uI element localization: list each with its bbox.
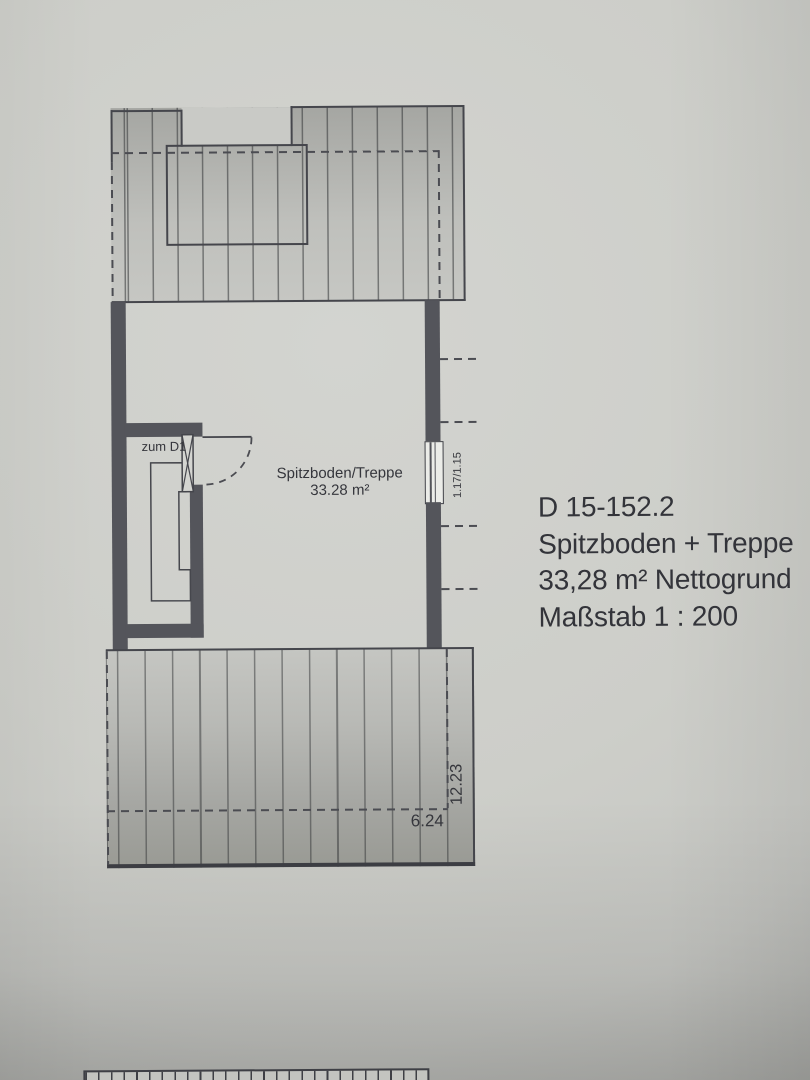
dormer-outline bbox=[166, 144, 309, 246]
roof-edge-right bbox=[462, 105, 465, 301]
depth-dimension-label: 12.23 bbox=[447, 758, 466, 810]
room-area-label: 33.28 m² bbox=[240, 481, 440, 499]
room-name-label: Spitzboden/Treppe bbox=[240, 464, 440, 482]
staircase-outline bbox=[151, 463, 191, 601]
floor-plan: Spitzboden/Treppe 33.28 m² zum D1 1.17/1… bbox=[0, 0, 810, 1080]
legend-area: 33,28 m² Nettogrund bbox=[538, 561, 794, 599]
legend-scale: Maßstab 1 : 200 bbox=[538, 598, 794, 636]
projection-dashed-line-2 bbox=[440, 421, 480, 423]
roof-notch-left-edge bbox=[180, 110, 182, 147]
stair-wall-right bbox=[190, 485, 204, 638]
stair-wall-top bbox=[124, 423, 202, 437]
roof-notch-right-edge bbox=[290, 106, 292, 146]
photo-background: Spitzboden/Treppe 33.28 m² zum D1 1.17/1… bbox=[0, 0, 810, 1080]
roof-area-lower bbox=[106, 648, 475, 868]
legend-drawing-number: D 15-152.2 bbox=[538, 488, 794, 526]
roof-edge-top-left bbox=[110, 110, 182, 112]
adjacent-drawing-strip bbox=[83, 1068, 429, 1080]
width-dimension-label: 6.24 bbox=[398, 811, 444, 831]
legend-title: Spitzboden + Treppe bbox=[538, 525, 794, 563]
lower-roof-edge-right bbox=[472, 647, 475, 866]
wall-right-lower bbox=[426, 502, 442, 648]
window-dimension-label: 1.17/1.15 bbox=[451, 435, 463, 515]
wall-left bbox=[111, 302, 128, 650]
projection-dashed-line-1 bbox=[440, 358, 480, 360]
projection-dashed-line-4 bbox=[441, 588, 481, 590]
roof-edge-left-solid bbox=[110, 110, 112, 162]
legend: D 15-152.2 Spitzboden + Treppe 33,28 m² … bbox=[538, 488, 794, 636]
stair-wall-bottom bbox=[126, 624, 204, 638]
roof-notch bbox=[181, 107, 291, 146]
lower-roof-edge-bottom bbox=[107, 862, 475, 868]
projection-dashed-line-3 bbox=[441, 525, 481, 527]
wall-right-upper bbox=[425, 300, 441, 441]
stair-door-label: zum D1 bbox=[142, 439, 187, 454]
